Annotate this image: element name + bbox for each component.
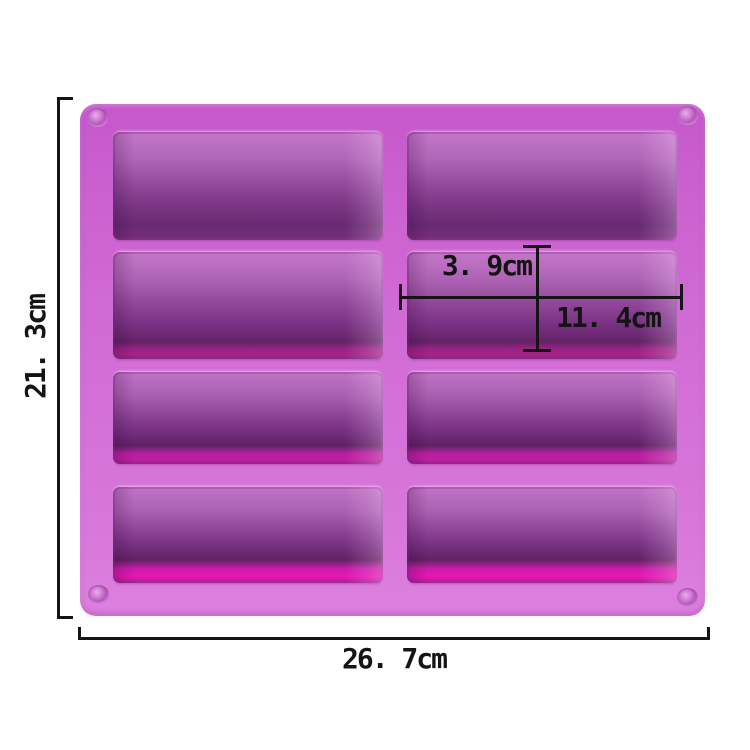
mold-corner-peg	[677, 588, 698, 607]
mold-corner-peg	[677, 106, 698, 125]
overall-width-dimension-line	[78, 627, 710, 640]
mold-corner-peg	[88, 585, 109, 604]
mold-cavity	[113, 132, 383, 240]
mold-cavity	[407, 132, 677, 240]
overall-height-dimension-line	[57, 97, 73, 619]
mold-cavity	[407, 372, 677, 464]
overall-height-label: 21. 3cm	[20, 295, 52, 399]
cavity-width-label: 11. 4cm	[556, 302, 660, 334]
mold-cavity	[113, 252, 383, 359]
silicone-mold	[80, 104, 705, 616]
cavity-depth-label: 3. 9cm	[400, 250, 531, 282]
product-photo: 21. 3cm 26. 7cm 3. 9cm 11. 4cm	[0, 0, 750, 750]
mold-cavity	[113, 372, 383, 464]
mold-corner-peg	[87, 108, 108, 127]
overall-width-label: 26. 7cm	[294, 643, 494, 675]
mold-cavity	[407, 487, 677, 583]
mold-cavity	[113, 487, 383, 583]
